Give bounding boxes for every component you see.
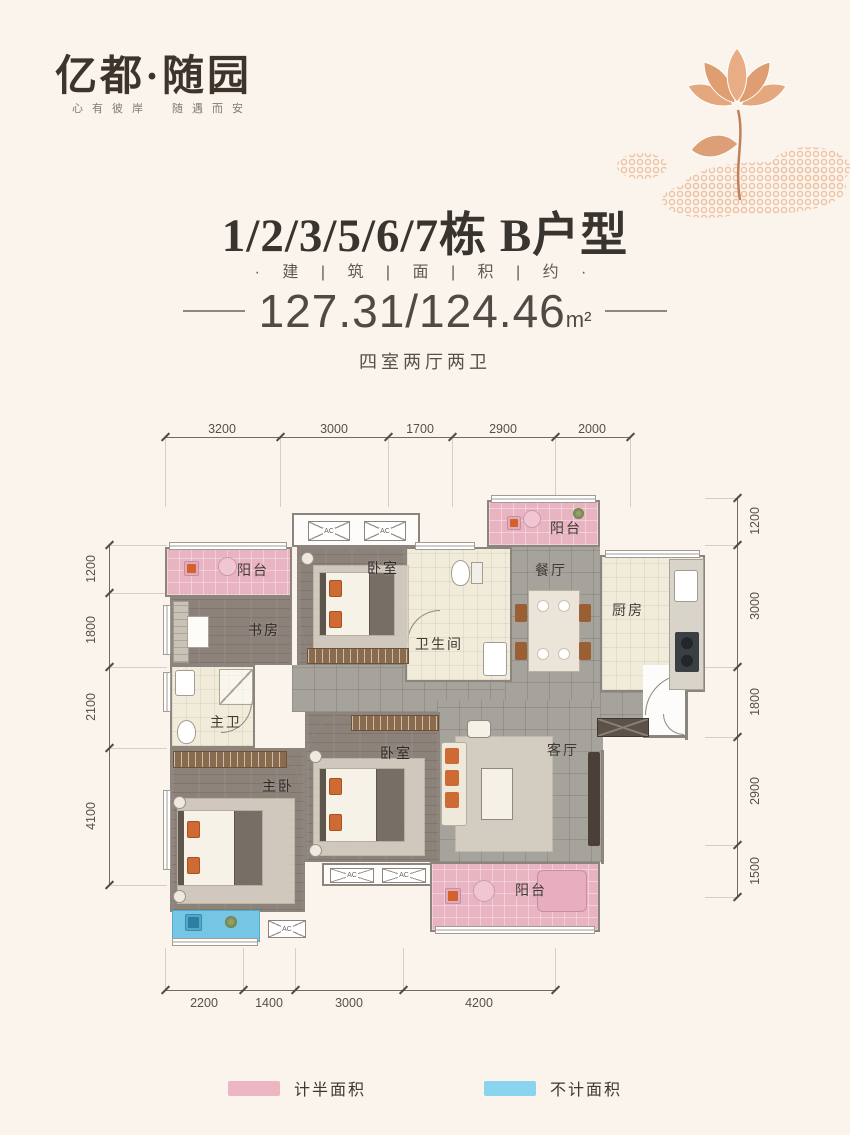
dimension-label: 2900 (473, 422, 533, 436)
uncounted-area-label: 不计面积 (550, 1076, 622, 1100)
legend-item-half-area: 计半面积 (228, 1076, 366, 1100)
area-row: 127.31/124.46m² (0, 284, 850, 338)
shoe-cabinet (597, 718, 649, 737)
dimension-label: 1200 (84, 547, 98, 591)
room-label-balcony-tr: 阳台 (550, 518, 582, 538)
right-dash (605, 310, 667, 312)
dim-line-top (165, 437, 630, 438)
stove (675, 632, 699, 672)
room-label-master-bedroom: 主卧 (262, 776, 294, 796)
ac-unit: AC (346, 872, 358, 879)
dimension-label: 3200 (192, 422, 252, 436)
dimension-label: 3000 (319, 996, 379, 1010)
brand-tagline: 心有彼岸 随遇而安 (72, 100, 252, 116)
uncounted-area-swatch (484, 1081, 536, 1096)
half-area-label: 计半面积 (294, 1076, 366, 1100)
dim-line-right (737, 498, 738, 897)
legend: 计半面积 不计面积 (0, 1076, 850, 1100)
ac-unit: AC (379, 528, 391, 535)
dimension-label: 4100 (84, 794, 98, 838)
dimension-label: 4200 (449, 996, 509, 1010)
room-label-kitchen: 厨房 (612, 600, 644, 620)
area-value: 127.31/124.46 (259, 285, 566, 337)
floorplan: 3200 3000 1700 2900 2000 2200 1400 3000 … (85, 420, 785, 1038)
ac-unit: AC (268, 920, 306, 938)
room-label-dining: 餐厅 (535, 560, 567, 580)
legend-item-uncounted-area: 不计面积 (484, 1076, 622, 1100)
dimension-label: 1200 (748, 499, 762, 543)
bed (319, 768, 405, 842)
left-dash (183, 310, 245, 312)
room-label-balcony-tl: 阳台 (237, 560, 269, 580)
bed (319, 572, 395, 636)
dimension-label: 2200 (174, 996, 234, 1010)
ac-unit: AC (323, 528, 335, 535)
room-label-bathroom: 卫生间 (415, 634, 463, 654)
dimension-label: 1500 (748, 849, 762, 893)
dimension-label: 2900 (748, 769, 762, 813)
tv-console (588, 752, 600, 846)
room-label-study: 书房 (248, 620, 280, 640)
room-label-master-bath: 主卫 (210, 712, 242, 732)
room-label-bedroom-top: 卧室 (367, 558, 399, 578)
room-label-balcony-br: 阳台 (515, 880, 547, 900)
half-area-swatch (228, 1081, 280, 1096)
dimension-label: 1400 (239, 996, 299, 1010)
floorplan-poster: 亿都·随园 心有彼岸 随遇而安 1/2/3/5/6/7栋 B (0, 0, 850, 1135)
area-subtitle: · 建 | 筑 | 面 | 积 | 约 · (0, 258, 850, 282)
dim-line-left (109, 545, 110, 885)
dim-line-bottom (165, 990, 555, 991)
dimension-label: 3000 (304, 422, 364, 436)
layout-type: 四室两厅两卫 (0, 348, 850, 374)
room-balcony-topright (487, 500, 600, 547)
dimension-label: 1700 (390, 422, 450, 436)
dimension-label: 1800 (84, 608, 98, 652)
bed (177, 810, 263, 886)
room-label-living: 客厅 (547, 740, 579, 760)
ac-platform-bottom: AC AC (322, 863, 432, 886)
brand-logo: 亿都·随园 (55, 42, 252, 103)
room-label-bedroom-mid: 卧室 (380, 743, 412, 763)
ac-platform-top: AC AC (292, 513, 420, 547)
dining-table (528, 590, 580, 672)
page-title: 1/2/3/5/6/7栋 B户型 (0, 196, 850, 265)
dimension-label: 3000 (748, 584, 762, 628)
dimension-label: 2000 (562, 422, 622, 436)
dimension-label: 2100 (84, 685, 98, 729)
dimension-label: 1800 (748, 680, 762, 724)
ac-unit: AC (398, 872, 410, 879)
area-unit: m² (566, 307, 592, 340)
